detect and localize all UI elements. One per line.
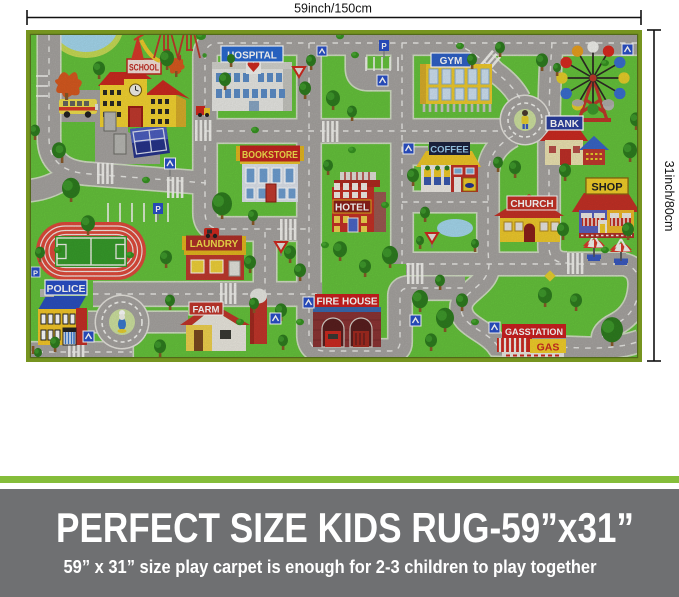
- svg-text:59inch/150cm: 59inch/150cm: [294, 2, 372, 16]
- svg-text:PERFECT SIZE KIDS RUG-59”x31”: PERFECT SIZE KIDS RUG-59”x31”: [56, 504, 634, 551]
- svg-text:31inch/80cm: 31inch/80cm: [662, 161, 676, 232]
- svg-text:59” x 31” size play carpet is: 59” x 31” size play carpet is enough for…: [64, 556, 597, 577]
